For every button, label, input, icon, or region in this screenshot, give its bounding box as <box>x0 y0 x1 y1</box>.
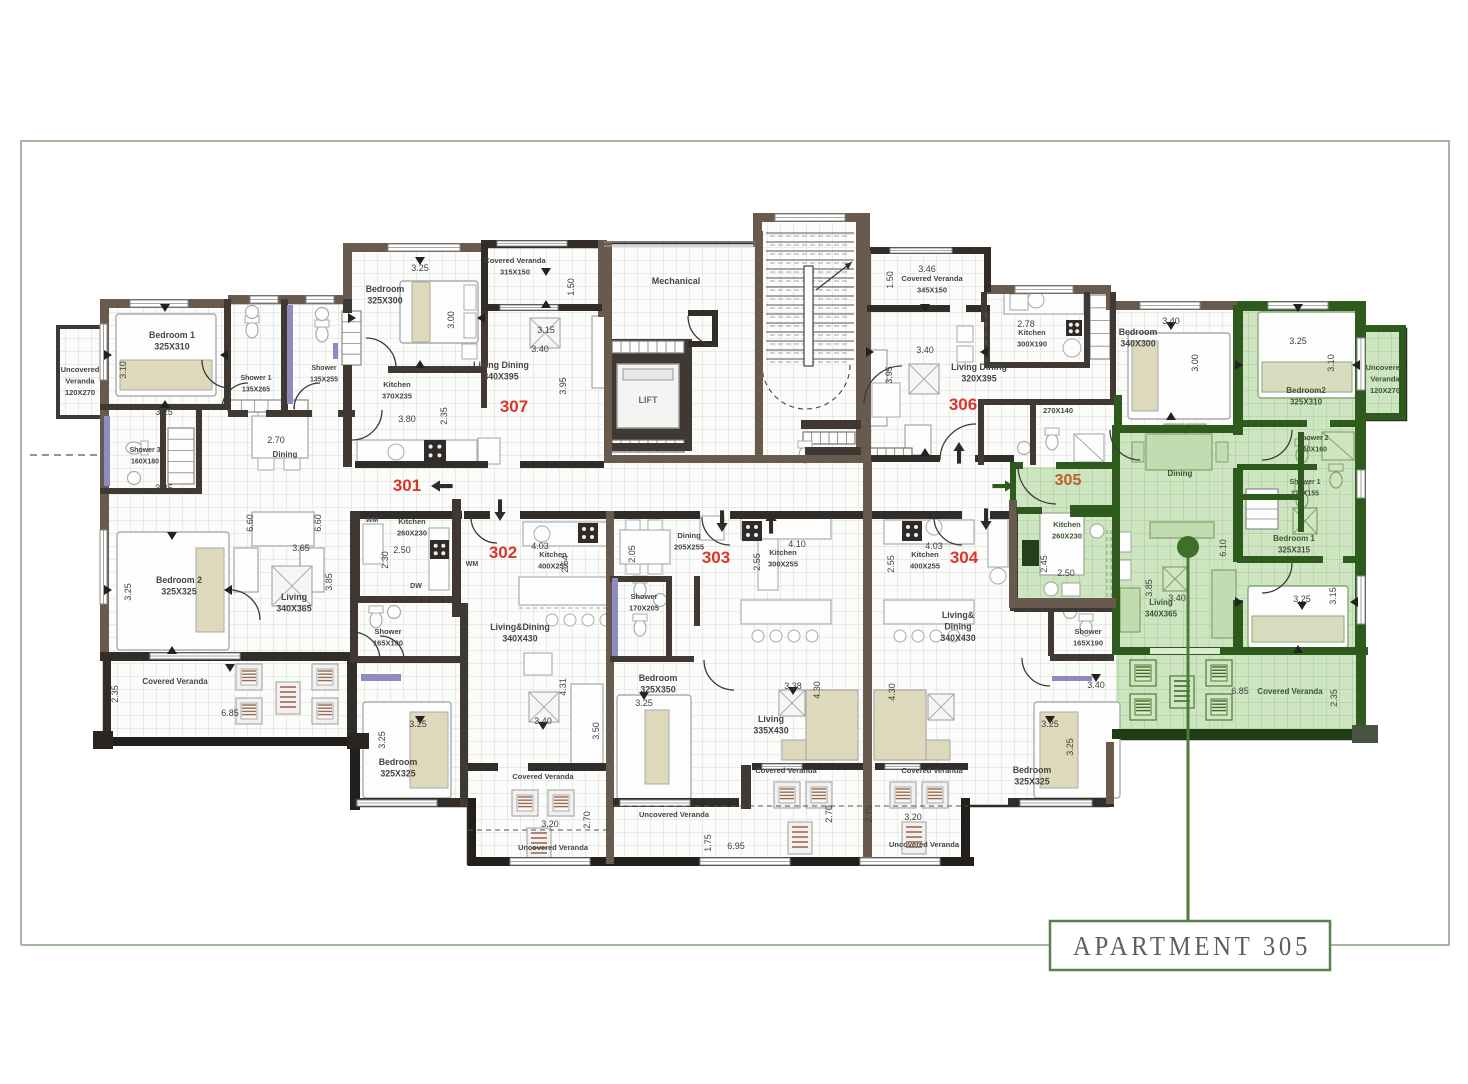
svg-text:4.30: 4.30 <box>812 681 822 699</box>
svg-text:325X310: 325X310 <box>154 342 189 352</box>
svg-text:Living: Living <box>281 592 307 602</box>
svg-text:3.20: 3.20 <box>904 812 922 822</box>
svg-text:2.54: 2.54 <box>560 555 570 573</box>
svg-text:325X310: 325X310 <box>1290 398 1323 407</box>
svg-text:340X300: 340X300 <box>1120 339 1155 349</box>
svg-text:160X180: 160X180 <box>131 459 159 466</box>
svg-text:3.25: 3.25 <box>1289 336 1307 346</box>
svg-text:3.25: 3.25 <box>1065 738 1075 756</box>
svg-text:120X270: 120X270 <box>1370 386 1400 395</box>
svg-text:2.35: 2.35 <box>439 407 449 425</box>
svg-text:300X255: 300X255 <box>768 560 798 569</box>
svg-text:303: 303 <box>702 548 730 567</box>
svg-text:4.10: 4.10 <box>788 539 806 549</box>
svg-text:1.50: 1.50 <box>566 278 576 296</box>
svg-text:DW: DW <box>410 583 422 590</box>
svg-text:Bedroom 1: Bedroom 1 <box>149 330 195 340</box>
svg-text:6.95: 6.95 <box>727 841 745 851</box>
svg-text:3.38: 3.38 <box>784 681 802 691</box>
svg-text:3.40: 3.40 <box>1168 593 1186 603</box>
svg-text:Shower 1: Shower 1 <box>240 375 271 382</box>
svg-text:3.80: 3.80 <box>398 414 416 424</box>
svg-text:Living Dining: Living Dining <box>951 362 1007 372</box>
svg-text:Bedroom: Bedroom <box>639 673 678 683</box>
svg-text:2.05: 2.05 <box>627 545 637 563</box>
svg-text:340X430: 340X430 <box>940 633 975 643</box>
svg-text:Uncovered Veranda: Uncovered Veranda <box>639 810 710 819</box>
svg-text:Dining: Dining <box>677 531 701 540</box>
svg-text:Bedroom: Bedroom <box>1013 765 1052 775</box>
svg-text:320X395: 320X395 <box>961 374 996 384</box>
svg-text:3.25: 3.25 <box>635 698 653 708</box>
svg-text:Bedroom: Bedroom <box>1119 327 1158 337</box>
svg-text:Dining: Dining <box>944 622 971 632</box>
svg-text:Kitchen: Kitchen <box>911 550 939 559</box>
svg-text:3.10: 3.10 <box>1326 354 1336 372</box>
svg-text:305: 305 <box>1055 472 1082 489</box>
svg-text:2.35: 2.35 <box>110 685 120 703</box>
svg-text:3.25: 3.25 <box>411 263 429 273</box>
svg-text:Shower 3: Shower 3 <box>129 447 160 454</box>
svg-text:Covered Veranda: Covered Veranda <box>512 772 574 781</box>
svg-text:Kitchen: Kitchen <box>1018 328 1046 337</box>
svg-text:6.10: 6.10 <box>1218 539 1228 557</box>
svg-text:3.00: 3.00 <box>446 311 456 329</box>
svg-text:Covered Veranda: Covered Veranda <box>901 274 963 283</box>
svg-text:Veranda: Veranda <box>65 377 95 386</box>
svg-text:2.55: 2.55 <box>886 555 896 573</box>
svg-text:2.70: 2.70 <box>582 811 592 829</box>
svg-text:Kitchen: Kitchen <box>383 380 411 389</box>
svg-text:3.46: 3.46 <box>918 264 936 274</box>
svg-text:165X190: 165X190 <box>373 639 403 648</box>
svg-text:LIFT: LIFT <box>639 395 658 405</box>
svg-text:301: 301 <box>393 476 421 495</box>
svg-text:Uncovered: Uncovered <box>61 365 100 374</box>
svg-text:120X270: 120X270 <box>65 388 95 397</box>
svg-text:165X190: 165X190 <box>1073 639 1103 648</box>
svg-text:3.25: 3.25 <box>1041 719 1059 729</box>
svg-text:Shower: Shower <box>311 365 337 372</box>
svg-text:Bedroom: Bedroom <box>366 284 405 294</box>
svg-text:Kitchen: Kitchen <box>769 548 797 557</box>
svg-text:210X160: 210X160 <box>1299 447 1327 454</box>
svg-text:3.25: 3.25 <box>409 719 427 729</box>
svg-text:370X235: 370X235 <box>382 392 412 401</box>
svg-text:3.15: 3.15 <box>537 325 555 335</box>
svg-text:340X365: 340X365 <box>276 604 311 614</box>
svg-text:Covered Veranda: Covered Veranda <box>484 256 546 265</box>
svg-text:2.50: 2.50 <box>1057 568 1075 578</box>
svg-text:3.50: 3.50 <box>591 722 601 740</box>
svg-text:345X150: 345X150 <box>917 286 947 295</box>
svg-text:2.70: 2.70 <box>824 805 834 823</box>
svg-text:170X205: 170X205 <box>629 604 659 613</box>
svg-text:6.85: 6.85 <box>221 708 239 718</box>
svg-text:Living: Living <box>758 714 784 724</box>
svg-text:Covered Veranda: Covered Veranda <box>755 766 817 775</box>
svg-text:Uncovered Veranda: Uncovered Veranda <box>889 840 960 849</box>
svg-text:3.25: 3.25 <box>1293 594 1311 604</box>
svg-text:304: 304 <box>950 548 979 567</box>
svg-text:3.65: 3.65 <box>292 543 310 553</box>
svg-text:3.10: 3.10 <box>118 361 128 379</box>
svg-text:Shower: Shower <box>630 592 657 601</box>
svg-text:340X395: 340X395 <box>483 372 518 382</box>
svg-text:2.50: 2.50 <box>393 545 411 555</box>
svg-text:Uncovered Veranda: Uncovered Veranda <box>518 843 589 852</box>
svg-text:4.31: 4.31 <box>558 678 568 696</box>
svg-text:Bedroom 2: Bedroom 2 <box>156 575 202 585</box>
svg-text:Living&Dining: Living&Dining <box>490 622 550 632</box>
svg-text:3.95: 3.95 <box>884 366 894 384</box>
svg-text:Covered Veranda: Covered Veranda <box>1257 687 1323 696</box>
svg-text:Shower 2: Shower 2 <box>1297 435 1328 442</box>
svg-text:3.00: 3.00 <box>1190 354 1200 372</box>
svg-text:2.78: 2.78 <box>1017 319 1035 329</box>
svg-text:APARTMENT 305: APARTMENT 305 <box>1073 931 1311 961</box>
svg-text:325X315: 325X315 <box>1278 546 1311 555</box>
svg-text:340X365: 340X365 <box>1145 610 1178 619</box>
svg-text:3.25: 3.25 <box>377 731 387 749</box>
svg-text:6.85: 6.85 <box>1231 686 1249 696</box>
svg-text:3.25: 3.25 <box>155 483 173 493</box>
svg-text:Dining: Dining <box>273 450 298 459</box>
svg-text:325X350: 325X350 <box>640 685 675 695</box>
svg-text:210X155: 210X155 <box>1291 491 1319 498</box>
svg-text:Living Dining: Living Dining <box>473 360 529 370</box>
svg-text:Dining: Dining <box>1168 469 1193 478</box>
svg-text:Bedroom 1: Bedroom 1 <box>1273 534 1315 543</box>
svg-text:1.50: 1.50 <box>885 271 895 289</box>
svg-text:WM: WM <box>466 561 479 568</box>
svg-text:340X430: 340X430 <box>502 634 537 644</box>
svg-text:302: 302 <box>489 543 517 562</box>
svg-text:Bedroom: Bedroom <box>379 757 418 767</box>
svg-text:135X265: 135X265 <box>242 387 270 394</box>
svg-text:Mechanical: Mechanical <box>652 276 701 286</box>
svg-text:2.30: 2.30 <box>380 551 390 569</box>
svg-text:3.40: 3.40 <box>1162 316 1180 326</box>
svg-text:Covered Veranda: Covered Veranda <box>142 677 208 686</box>
svg-text:2.70: 2.70 <box>267 435 285 445</box>
svg-text:325X300: 325X300 <box>367 296 402 306</box>
svg-text:2.45: 2.45 <box>1039 555 1049 573</box>
svg-text:3.85: 3.85 <box>1144 579 1154 597</box>
svg-text:Veranda: Veranda <box>1370 375 1400 384</box>
svg-text:2.70: 2.70 <box>864 805 874 823</box>
svg-text:260X230: 260X230 <box>397 529 427 538</box>
svg-text:3.20: 3.20 <box>541 819 559 829</box>
svg-text:205X255: 205X255 <box>674 543 704 552</box>
svg-text:1.75: 1.75 <box>703 834 713 852</box>
svg-text:315X150: 315X150 <box>500 268 530 277</box>
svg-text:Kitchen: Kitchen <box>398 517 426 526</box>
svg-text:2.55: 2.55 <box>752 553 762 571</box>
svg-text:3.40: 3.40 <box>916 345 934 355</box>
svg-text:325X325: 325X325 <box>161 587 196 597</box>
svg-text:325X325: 325X325 <box>1014 777 1049 787</box>
svg-text:Living&: Living& <box>942 610 975 620</box>
svg-text:135X255: 135X255 <box>310 377 338 384</box>
svg-text:4.30: 4.30 <box>887 683 897 701</box>
svg-text:325X325: 325X325 <box>380 769 415 779</box>
svg-text:Covered Veranda: Covered Veranda <box>901 766 963 775</box>
svg-text:307: 307 <box>500 397 528 416</box>
svg-text:300X190: 300X190 <box>1017 340 1047 349</box>
svg-text:400X255: 400X255 <box>910 562 940 571</box>
svg-text:Bedroom2: Bedroom2 <box>1286 386 1326 395</box>
svg-text:Shower: Shower <box>374 627 401 636</box>
svg-text:Kitchen: Kitchen <box>1053 520 1081 529</box>
svg-text:2.35: 2.35 <box>1329 689 1339 707</box>
svg-text:3.25: 3.25 <box>155 407 173 417</box>
svg-text:WM: WM <box>366 517 379 524</box>
svg-text:3.25: 3.25 <box>123 583 133 601</box>
svg-text:3.85: 3.85 <box>324 573 334 591</box>
svg-text:270X140: 270X140 <box>1043 406 1073 415</box>
svg-text:Shower 1: Shower 1 <box>1289 479 1320 486</box>
svg-text:3.95: 3.95 <box>558 377 568 395</box>
svg-text:Uncovered: Uncovered <box>1366 363 1405 372</box>
svg-text:335X430: 335X430 <box>753 726 788 736</box>
svg-text:3.40: 3.40 <box>1087 680 1105 690</box>
svg-text:Shower: Shower <box>1074 627 1101 636</box>
svg-text:6.60: 6.60 <box>245 514 255 532</box>
svg-text:3.15: 3.15 <box>1328 587 1338 605</box>
svg-text:306: 306 <box>949 395 977 414</box>
svg-text:6.60: 6.60 <box>313 514 323 532</box>
svg-text:260X230: 260X230 <box>1052 532 1082 541</box>
svg-text:3.40: 3.40 <box>534 716 552 726</box>
svg-text:3.40: 3.40 <box>531 344 549 354</box>
